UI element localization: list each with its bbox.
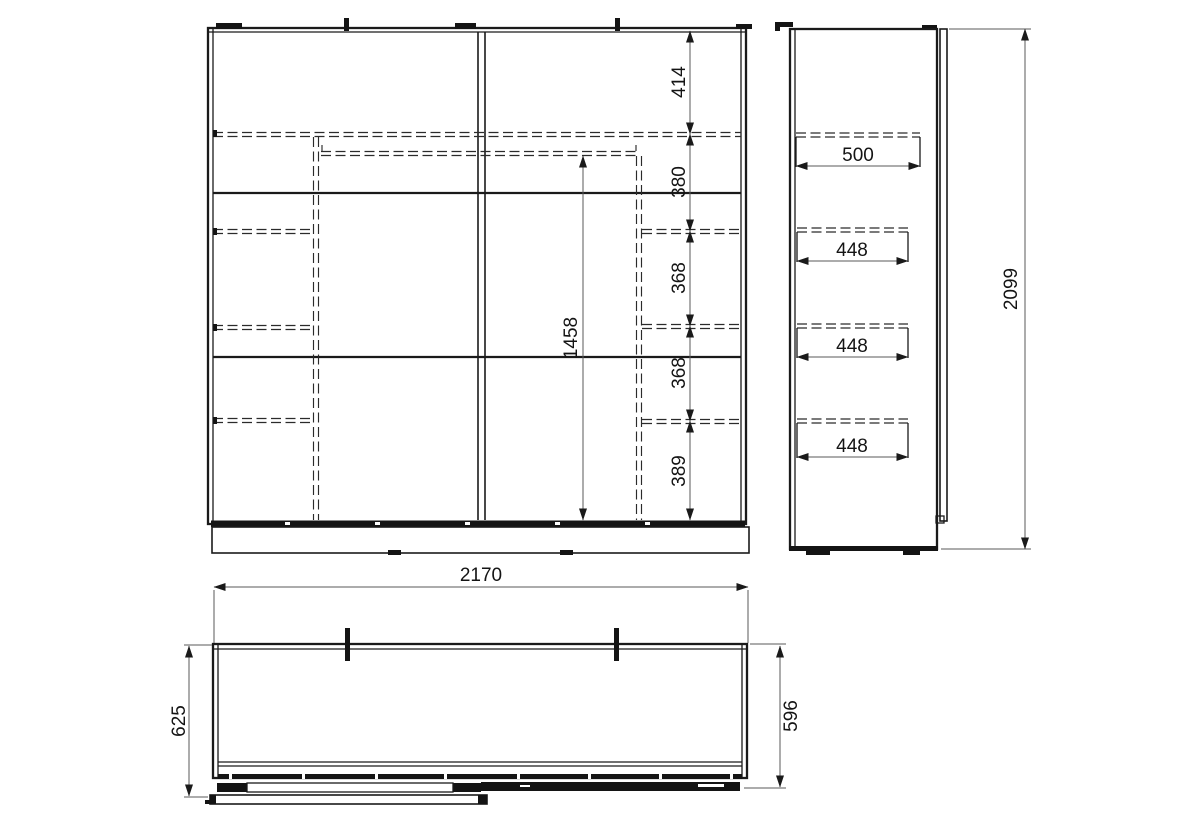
dim-label-368b: 368 bbox=[669, 357, 690, 389]
drawer-depth-dimensions: 500 448 448 448 bbox=[796, 145, 920, 457]
right-partition-dashed bbox=[637, 156, 642, 520]
dim-label-596: 596 bbox=[781, 700, 802, 732]
dim-label-500: 500 bbox=[842, 145, 874, 166]
wardrobe-outline bbox=[208, 28, 746, 524]
front-sliding-door-plan bbox=[210, 795, 487, 804]
plan-body-outline bbox=[213, 644, 747, 778]
dim-label-625: 625 bbox=[169, 705, 190, 737]
front-door-carriage-bar bbox=[247, 783, 453, 792]
side-feet bbox=[806, 551, 920, 555]
drawer-extension-lines bbox=[796, 137, 920, 458]
side-bottom-rail bbox=[789, 546, 938, 551]
dim-label-448c: 448 bbox=[836, 436, 868, 457]
side-body-outline bbox=[790, 29, 937, 549]
front-view: 414 380 368 368 389 1458 bbox=[208, 18, 752, 555]
overall-width-dimension: 2170 bbox=[214, 565, 748, 643]
width-extension-lines bbox=[214, 590, 748, 643]
dim-label-380: 380 bbox=[669, 166, 690, 198]
sliding-door-divider bbox=[478, 32, 485, 520]
left-partition-dashed bbox=[314, 137, 319, 520]
wardrobe-technical-drawing: 414 380 368 368 389 1458 500 448 448 bbox=[0, 0, 1200, 821]
hanging-rail-dashed bbox=[321, 145, 637, 156]
dim-label-448a: 448 bbox=[836, 240, 868, 261]
right-shelves-dashed bbox=[642, 230, 741, 424]
top-shelf-dashed bbox=[213, 133, 741, 137]
left-shelves-dashed bbox=[213, 230, 313, 423]
top-view: 2170 625 596 bbox=[169, 565, 802, 804]
front-door-end-caps bbox=[205, 795, 487, 804]
dim-label-2099: 2099 bbox=[1001, 268, 1022, 310]
drawer-tops-dashed bbox=[796, 133, 920, 423]
track-frame bbox=[218, 774, 742, 779]
drawing-canvas: 414 380 368 368 389 1458 500 448 448 bbox=[0, 0, 1200, 821]
depth-overall-dimension: 625 bbox=[169, 645, 212, 797]
door-panel-lines bbox=[213, 193, 741, 357]
side-view: 500 448 448 448 2099 bbox=[775, 22, 1031, 555]
wardrobe-inner-edges bbox=[208, 28, 746, 524]
front-dimension-chain: 414 380 368 368 389 bbox=[669, 31, 690, 520]
interior-height-dimension: 1458 bbox=[561, 156, 583, 520]
overall-height-dimension: 2099 bbox=[941, 29, 1031, 549]
plan-inner-edges bbox=[213, 644, 747, 778]
dim-label-368a: 368 bbox=[669, 262, 690, 294]
bottom-rail bbox=[211, 521, 745, 528]
depth-body-dimension: 596 bbox=[744, 644, 802, 788]
dim-label-1458: 1458 bbox=[561, 317, 582, 359]
dim-label-448b: 448 bbox=[836, 336, 868, 357]
dim-label-2170: 2170 bbox=[460, 565, 502, 586]
sliding-door-side-profile bbox=[940, 29, 947, 521]
dim-label-414: 414 bbox=[669, 66, 690, 98]
plinth bbox=[212, 527, 749, 553]
dim-label-389: 389 bbox=[669, 455, 690, 487]
